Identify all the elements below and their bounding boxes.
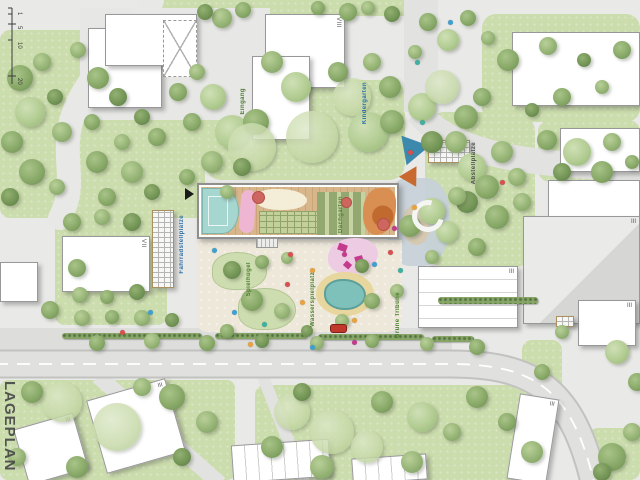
tree [419, 13, 437, 31]
person-marker [392, 226, 397, 231]
tree [591, 161, 613, 183]
building [548, 180, 640, 220]
tree [425, 250, 439, 264]
tree [286, 111, 338, 163]
person-marker [288, 252, 293, 257]
storey-label: III [631, 219, 636, 225]
tree [89, 335, 105, 351]
tree [339, 3, 357, 21]
label-gruene-tribuene: Grüne Tribüne [395, 292, 401, 338]
tree [72, 287, 88, 303]
storey-label: VIII [335, 17, 341, 28]
tree [363, 53, 381, 71]
tree [220, 324, 234, 338]
storey-label: VII [140, 239, 146, 248]
label-spielhuegel: Spielhügel [246, 262, 252, 296]
tree [460, 10, 476, 26]
tree [114, 134, 130, 150]
tree [86, 151, 108, 173]
tree [159, 384, 185, 410]
storey-label: III [509, 269, 514, 275]
person-marker [310, 345, 315, 350]
tree [1, 131, 23, 153]
tree [100, 290, 114, 304]
tree [401, 451, 423, 473]
tree [443, 423, 461, 441]
tree [21, 381, 43, 403]
tree [328, 62, 348, 82]
tree [466, 386, 488, 408]
tree [425, 70, 459, 104]
person-marker [500, 180, 505, 185]
tree [255, 255, 269, 269]
tree [74, 310, 90, 326]
tree [121, 161, 143, 183]
person-marker [372, 262, 377, 267]
tree [469, 339, 485, 355]
tree [144, 333, 160, 349]
tree [165, 313, 179, 327]
tree [70, 42, 86, 58]
person-marker [398, 268, 403, 273]
tree [66, 456, 88, 478]
tree [628, 373, 640, 391]
person-marker [388, 250, 393, 255]
tree [595, 80, 609, 94]
bike-rack [152, 210, 174, 288]
court-markings [208, 196, 228, 226]
tree [563, 138, 591, 166]
tree [521, 441, 543, 463]
scale-bar: 1 5 10 20 [2, 2, 32, 112]
tree [555, 325, 569, 339]
person-marker [352, 340, 357, 345]
person-marker [120, 330, 125, 335]
tree [537, 130, 557, 150]
tree [274, 303, 290, 319]
tree [497, 49, 519, 71]
person-marker [232, 310, 237, 315]
tree [365, 334, 379, 348]
tree [133, 378, 151, 396]
parked-car [330, 324, 347, 333]
tree [261, 51, 283, 73]
tree [123, 213, 141, 231]
scale-tick-5: 5 [16, 26, 22, 30]
tree [63, 213, 81, 231]
tree [513, 193, 531, 211]
tree [87, 67, 109, 89]
tree [189, 64, 205, 80]
hedge-row [62, 333, 202, 339]
tree [197, 4, 213, 20]
tree [261, 436, 283, 458]
tree [613, 41, 631, 59]
storey-label: III [627, 303, 632, 309]
tree [473, 88, 491, 106]
raised-beds [259, 211, 320, 234]
person-marker [248, 342, 253, 347]
tree [235, 2, 251, 18]
site-plan: Dachgarten Eingang Kindergarten Abstellp… [0, 0, 640, 480]
person-marker [148, 310, 153, 315]
tree [223, 261, 241, 279]
tree [19, 159, 45, 185]
tree [605, 340, 629, 364]
tree [98, 188, 116, 206]
tree [485, 205, 509, 229]
label-abstellplaetze: Abstellplätze [471, 142, 477, 184]
tree [311, 1, 325, 15]
tree [593, 463, 611, 480]
tree [134, 109, 150, 125]
tree [169, 83, 187, 101]
tree [355, 259, 369, 273]
scale-tick-10: 10 [16, 42, 22, 49]
label-wasserspielplatz: Wasserspielplatz [310, 272, 316, 327]
water-pond [324, 279, 366, 310]
tree [481, 31, 495, 45]
person-marker [342, 252, 347, 257]
tree [105, 310, 119, 324]
tree [148, 128, 166, 146]
tree [201, 151, 223, 173]
tree [445, 131, 467, 153]
person-marker [212, 248, 217, 253]
tree [379, 76, 401, 98]
tree [47, 89, 63, 105]
tree [539, 37, 557, 55]
person-marker [300, 300, 305, 305]
tree [212, 8, 232, 28]
tree [293, 383, 311, 401]
label-eingang: Eingang [240, 88, 246, 114]
tree [407, 402, 437, 432]
tree [454, 105, 478, 129]
tree [129, 284, 145, 300]
tree [255, 334, 269, 348]
tree [173, 448, 191, 466]
person-marker [448, 20, 453, 25]
tree [281, 72, 311, 102]
tree [361, 1, 375, 15]
tree [371, 391, 393, 413]
tree [200, 84, 226, 110]
tree [498, 413, 516, 431]
tree [220, 185, 234, 199]
person-marker [352, 318, 357, 323]
tree [448, 187, 466, 205]
tree [109, 88, 127, 106]
plan-title: LAGEPLAN [1, 381, 18, 472]
tree [196, 411, 218, 433]
person-marker [262, 322, 267, 327]
tree [199, 335, 215, 351]
person-marker [285, 282, 290, 287]
tree [310, 455, 334, 479]
tree [508, 168, 526, 186]
tree [351, 431, 383, 463]
tree [534, 364, 550, 380]
roof-tree [252, 191, 265, 204]
scale-tick-20: 20 [16, 78, 22, 85]
tree [183, 113, 201, 131]
tree [41, 301, 59, 319]
tree [553, 163, 571, 181]
label-kindergarten: Kindergarten [362, 82, 368, 124]
tree [84, 114, 100, 130]
person-marker [415, 60, 420, 65]
tree [93, 403, 141, 451]
tree [421, 131, 443, 153]
person-marker [408, 150, 413, 155]
tree [577, 53, 591, 67]
tree [94, 209, 110, 225]
building: III [578, 300, 636, 346]
tree [49, 179, 65, 195]
person-marker [420, 120, 425, 125]
person-marker [412, 205, 417, 210]
tree [408, 45, 422, 59]
roof-tree [341, 197, 352, 208]
tree [233, 158, 251, 176]
tree [437, 29, 459, 51]
stairs [256, 238, 278, 248]
tree [364, 293, 380, 309]
tree [384, 6, 400, 22]
storey-label: III [549, 401, 555, 408]
scale-tick-1: 1 [16, 12, 22, 16]
tree [625, 155, 639, 169]
tree [68, 259, 86, 277]
tree [42, 382, 82, 422]
tree [33, 53, 51, 71]
tree [491, 141, 513, 163]
tree [553, 88, 571, 106]
tree [1, 188, 19, 206]
hedge-row [438, 297, 538, 304]
building [0, 262, 38, 302]
tree [241, 289, 263, 311]
hedge-row [432, 336, 474, 342]
tree [623, 423, 640, 441]
tree [475, 175, 499, 199]
tree [310, 410, 354, 454]
roof-tree [377, 218, 390, 231]
tree [420, 337, 434, 351]
tree [179, 169, 195, 185]
tree [603, 133, 621, 151]
tree [468, 238, 486, 256]
tree [380, 110, 404, 134]
tree [52, 122, 72, 142]
tree [144, 184, 160, 200]
label-fahrradstellplaetze: Fahrradstellplätze [179, 215, 185, 274]
tree [525, 103, 539, 117]
entrance-arrow-icon [185, 188, 194, 200]
